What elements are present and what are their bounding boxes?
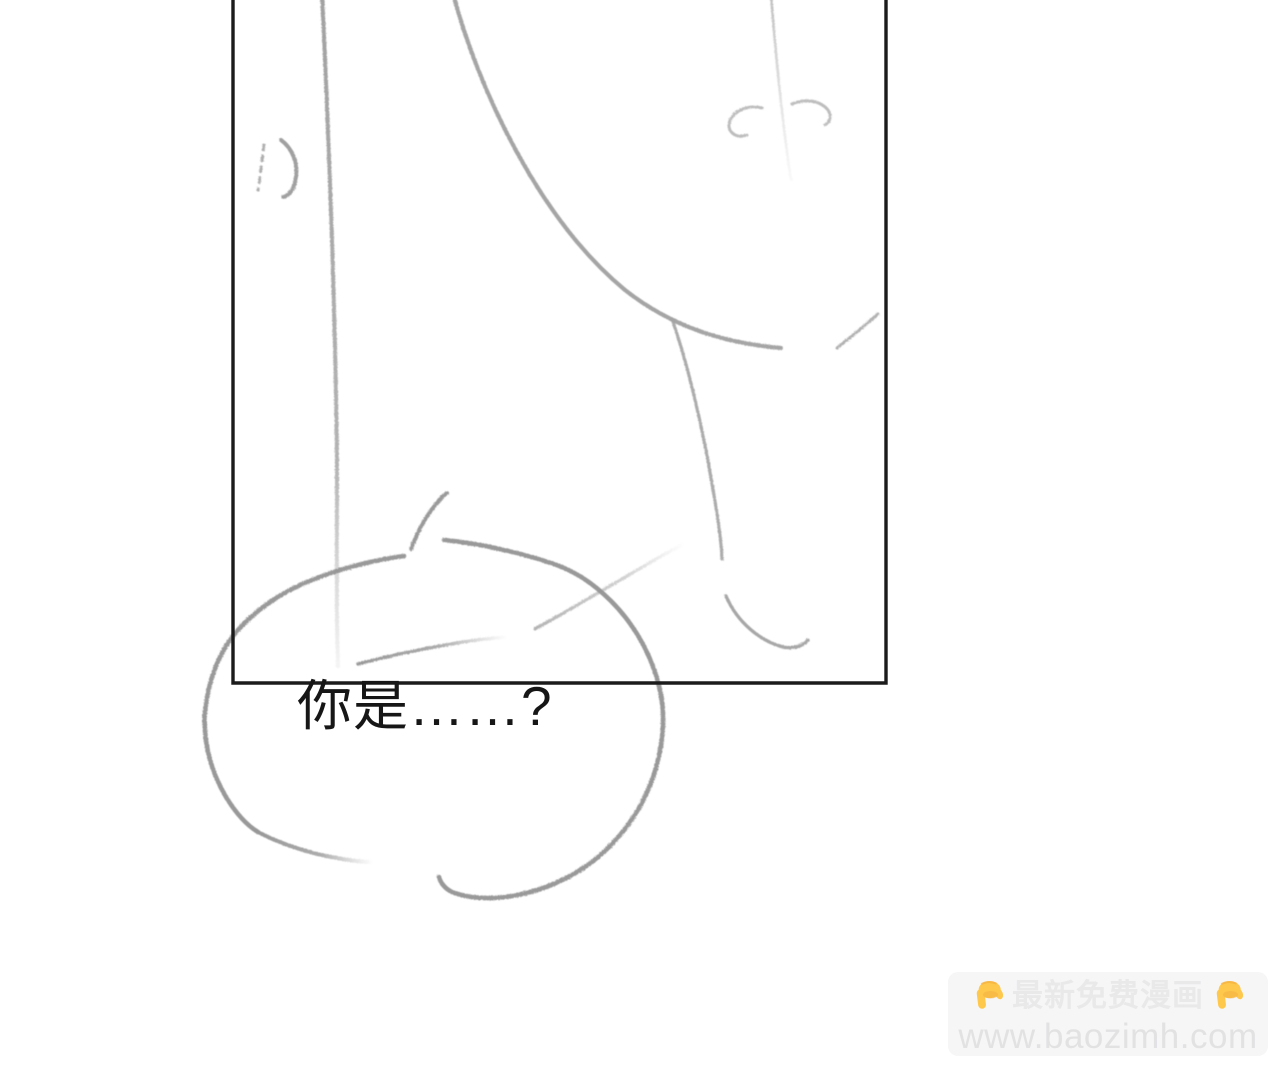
watermark-url: www.baozimh.com: [958, 1019, 1257, 1054]
comic-page: 你是……? 最新免费漫画 www.baozimh.com: [0, 0, 1280, 1080]
speech-bubble-tail-fade: [256, 831, 373, 862]
speech-bubble-stem: [411, 493, 447, 549]
sketch-curve-right: [672, 319, 722, 559]
sketch-curve-bottom-right: [726, 596, 808, 648]
sketch-line-top-right-vertical: [771, 0, 791, 180]
sketch-arc-large: [452, 0, 781, 348]
sketch-canvas: [0, 0, 1280, 1080]
pointing-down-hand-icon: [1211, 979, 1245, 1013]
watermark-title: 最新免费漫画: [1012, 980, 1204, 1011]
sketch-line-near-right-border: [837, 314, 878, 348]
panel-border: [233, 0, 886, 683]
sketch-line-vertical-left: [322, 0, 338, 666]
sketch-mark-bracket-right: [281, 140, 296, 197]
sketch-diagonal-cross: [535, 544, 684, 629]
speech-bubble-text: 你是……?: [297, 679, 553, 734]
sketch-line-under-text: [358, 637, 507, 664]
sketch-mark-bracket-left: [258, 145, 264, 190]
pointing-down-hand-icon: [971, 979, 1005, 1013]
sketch-curl-left: [729, 107, 762, 136]
watermark-title-row: 最新免费漫画: [971, 975, 1245, 1017]
sketch-curl-right: [792, 101, 830, 125]
watermark-badge: 最新免费漫画 www.baozimh.com: [948, 972, 1268, 1056]
